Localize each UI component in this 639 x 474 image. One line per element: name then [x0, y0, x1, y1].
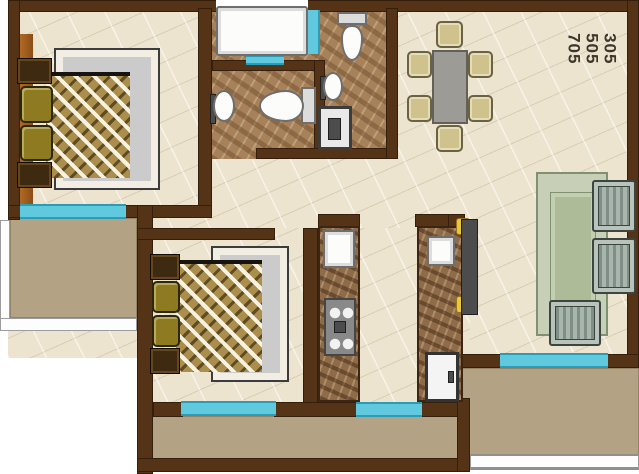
washing-machine-drum: [328, 118, 341, 140]
bedroom2-right-wall: [303, 228, 318, 416]
armchair-2: [592, 238, 636, 294]
hob-center-plate: [334, 321, 346, 333]
dining-table: [432, 50, 468, 124]
top-wall: [8, 0, 639, 12]
bedroom2-window: [181, 401, 276, 416]
bed2-pillow-1: [152, 281, 180, 313]
balcony-bottom-strip: [137, 416, 470, 460]
dining-chair-left-1: [407, 51, 432, 78]
armchair-1-seat: [598, 186, 630, 226]
kitchen-hob: [324, 298, 356, 356]
balcony-living: [460, 368, 639, 456]
refrigerator: [425, 352, 459, 402]
bathtub: [216, 6, 308, 56]
bath-mat: [246, 55, 284, 65]
armchair-1: [592, 180, 636, 232]
wash-basin-1: [213, 90, 235, 122]
bedroom2-left-wall: [137, 205, 153, 474]
dining-chair-bottom: [436, 125, 463, 152]
balcony-top-left: [10, 218, 137, 318]
bed2-nightstand-top: [150, 254, 180, 280]
window-sill-1: [153, 402, 183, 417]
balcony-top-left-rail-left: [0, 220, 10, 330]
washing-machine: [318, 106, 352, 150]
living-window: [500, 353, 608, 368]
bed1-nightstand-top: [17, 58, 52, 84]
floor-plan: 305 505 705: [0, 0, 639, 474]
bed1-pillow-2: [20, 125, 53, 161]
dining-chair-right-2: [468, 95, 493, 122]
sofa-seat: [555, 306, 595, 340]
balcony-divider-wall: [457, 398, 470, 472]
kitchen-door-leaf: [461, 219, 478, 315]
toilet-cistern-1: [337, 12, 367, 25]
balcony-top-left-rail-bottom: [0, 318, 137, 331]
refrigerator-handle: [448, 371, 454, 383]
bedroom1-window: [20, 204, 126, 219]
toilet-bowl-2: [259, 90, 304, 122]
bath-window: [306, 10, 320, 54]
dining-chair-left-2: [407, 95, 432, 122]
bathroom-dining-wall: [386, 8, 398, 159]
bed1-pillow-1: [20, 86, 53, 123]
window-sill-2: [274, 402, 360, 417]
bed2-blanket: [176, 260, 262, 372]
balcony-living-rail: [470, 454, 639, 470]
bed2-pillow-2: [152, 315, 180, 347]
bedroom2-top-wall: [137, 228, 275, 240]
dining-chair-right-1: [468, 51, 493, 78]
sofa: [549, 300, 601, 346]
bed2-nightstand-bottom: [150, 348, 180, 374]
kitchen-window: [356, 402, 422, 417]
unit-numbers: 305 505 705: [556, 12, 628, 86]
kitchen-sink-left: [323, 230, 355, 268]
unit-numbers-text: 305 505 705: [565, 33, 619, 64]
kitchen-sink-right: [427, 236, 455, 266]
wash-basin-2: [323, 72, 343, 101]
dining-chair-top: [436, 21, 463, 48]
bed1-nightstand-bottom: [17, 162, 52, 188]
living-rug-center: [550, 192, 596, 312]
bottom-wall: [137, 458, 470, 472]
armchair-2-seat: [598, 244, 630, 288]
bed1-blanket: [46, 72, 130, 178]
